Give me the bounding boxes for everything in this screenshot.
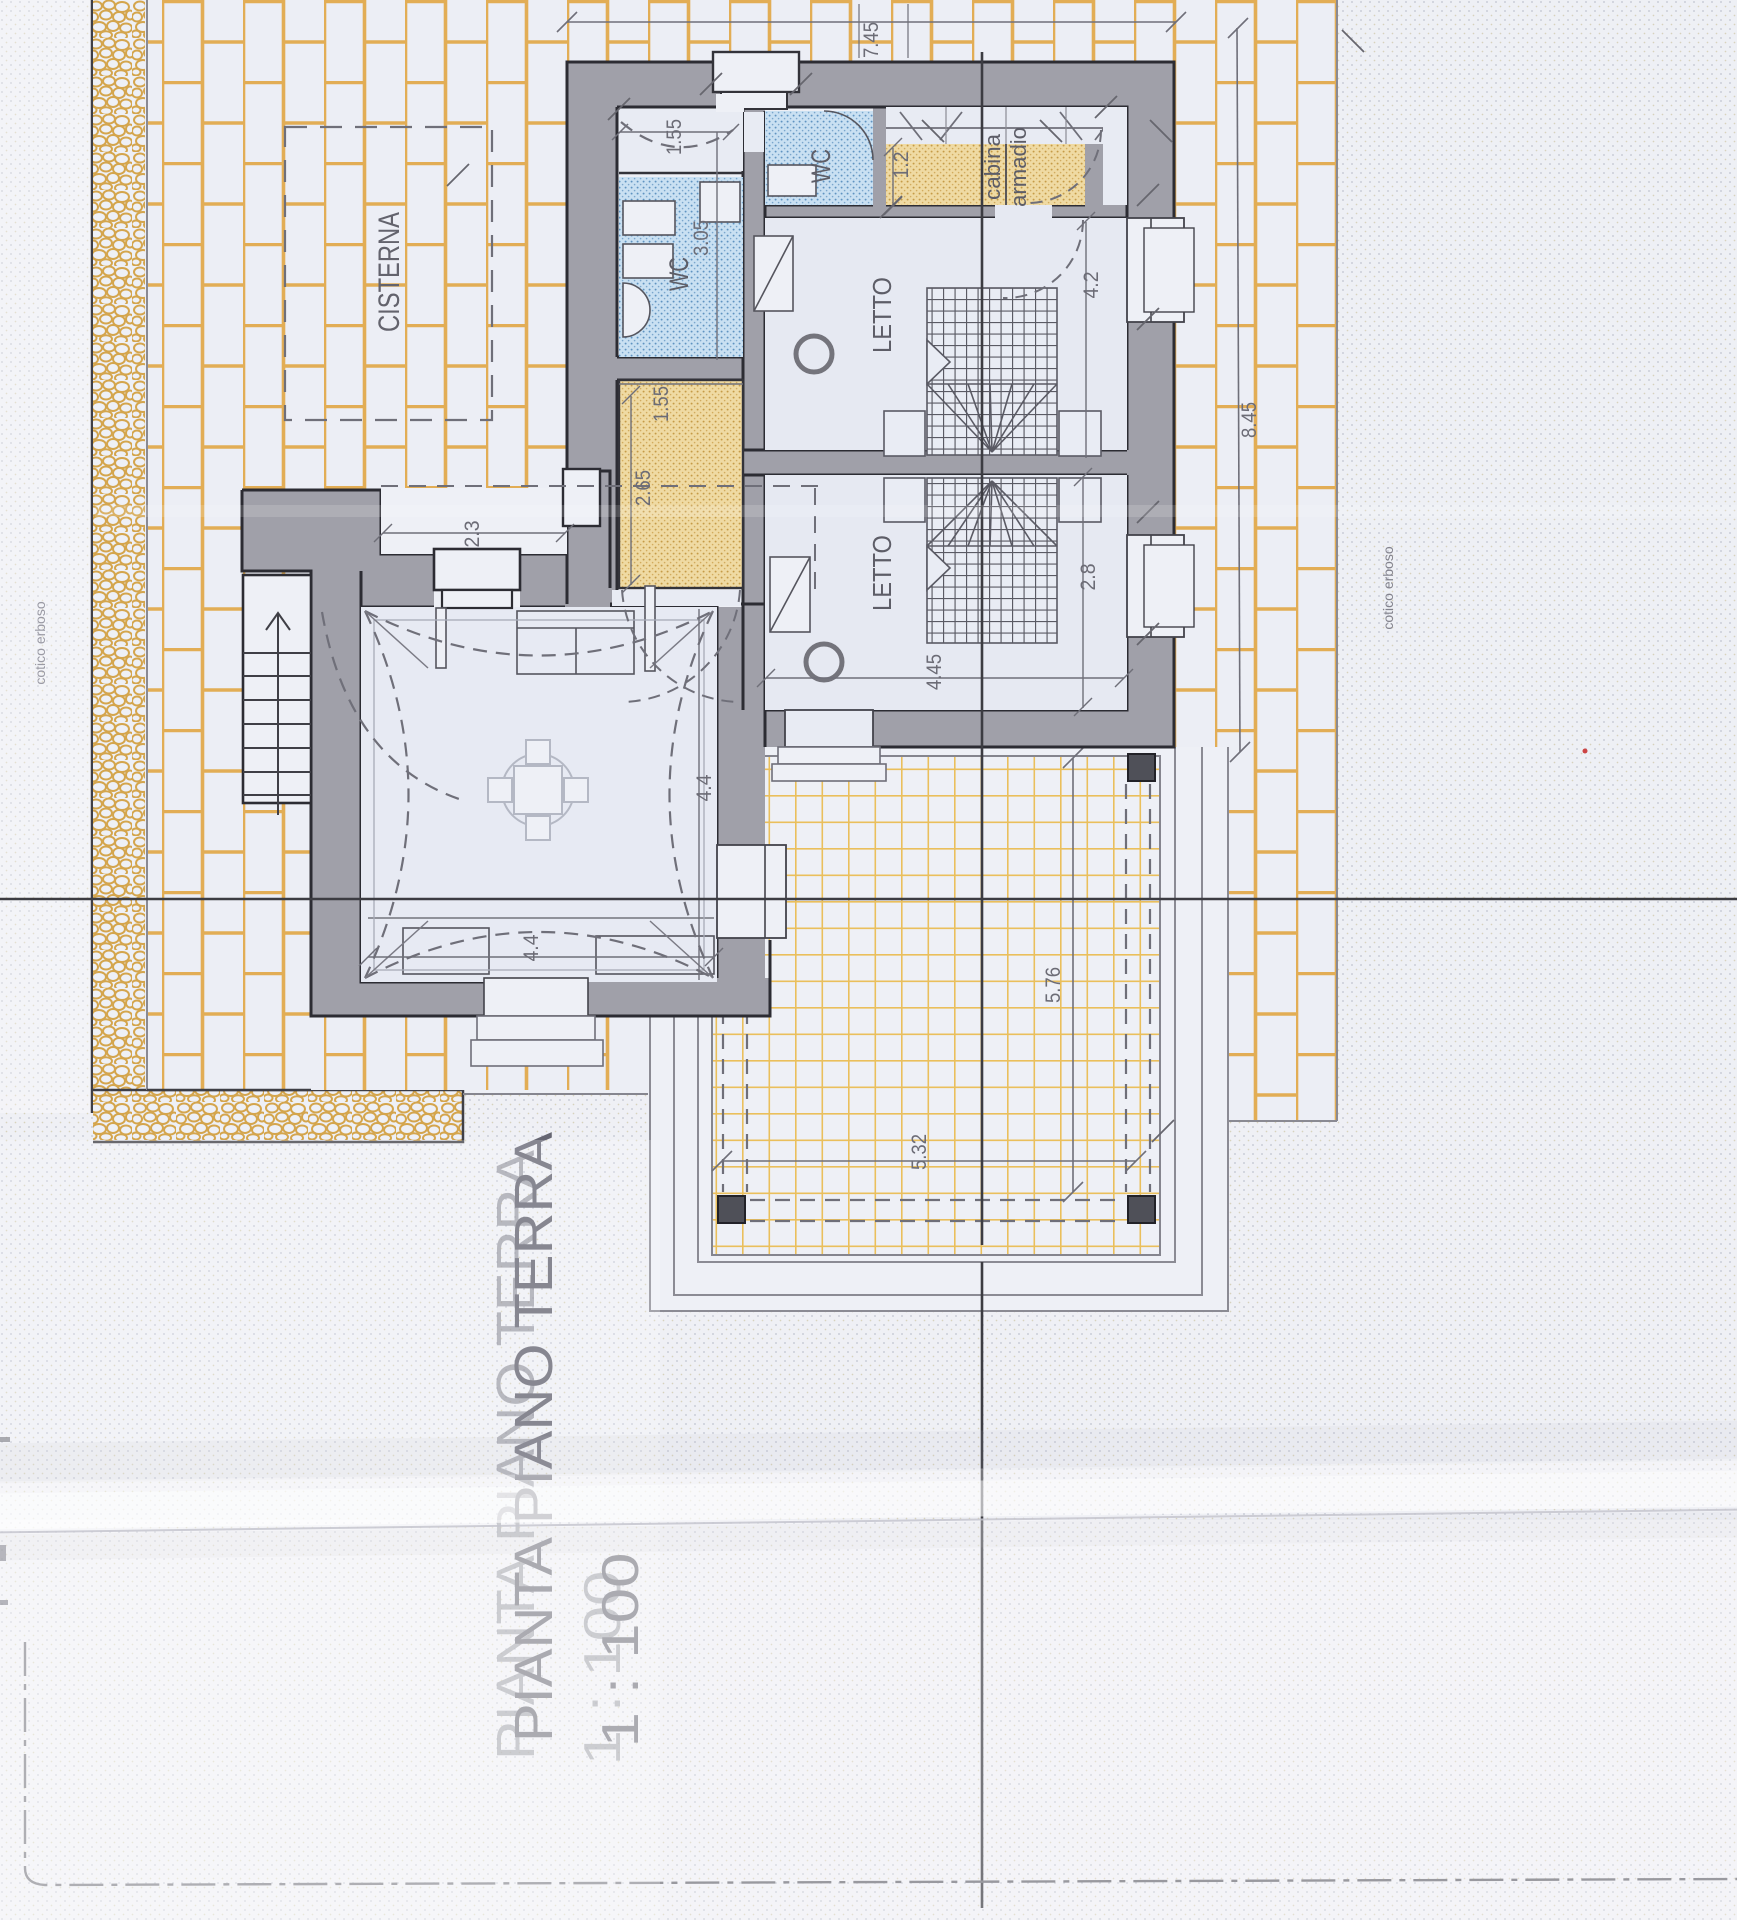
svg-text:1.2: 1.2 [890, 152, 913, 179]
svg-text:4.2: 4.2 [1080, 272, 1103, 299]
svg-text:WC: WC [664, 257, 694, 291]
svg-text:4.4: 4.4 [693, 774, 716, 801]
svg-text:armadio: armadio [1006, 127, 1031, 207]
svg-text:5.76: 5.76 [1042, 967, 1065, 1003]
svg-text:WC: WC [806, 149, 836, 183]
svg-text:LETTO: LETTO [867, 277, 897, 353]
svg-text:2.65: 2.65 [632, 470, 655, 506]
svg-text:cotico erboso: cotico erboso [1380, 546, 1396, 629]
svg-text:2.3: 2.3 [461, 521, 484, 548]
svg-text:4.45: 4.45 [923, 654, 946, 690]
svg-text:8.45: 8.45 [1238, 402, 1261, 438]
svg-text:1.55: 1.55 [650, 386, 673, 422]
svg-text:cotico erboso: cotico erboso [32, 601, 48, 684]
svg-text:2.8: 2.8 [1077, 564, 1100, 591]
svg-text:1.55: 1.55 [663, 119, 686, 155]
svg-text:cabina: cabina [980, 133, 1005, 200]
svg-text:LETTO: LETTO [867, 535, 897, 611]
svg-text:CISTERNA: CISTERNA [373, 212, 406, 332]
svg-text:3.05: 3.05 [690, 220, 713, 256]
svg-text:7.45: 7.45 [860, 22, 883, 58]
svg-text:5.32: 5.32 [908, 1134, 931, 1170]
svg-text:4.4: 4.4 [520, 934, 543, 961]
